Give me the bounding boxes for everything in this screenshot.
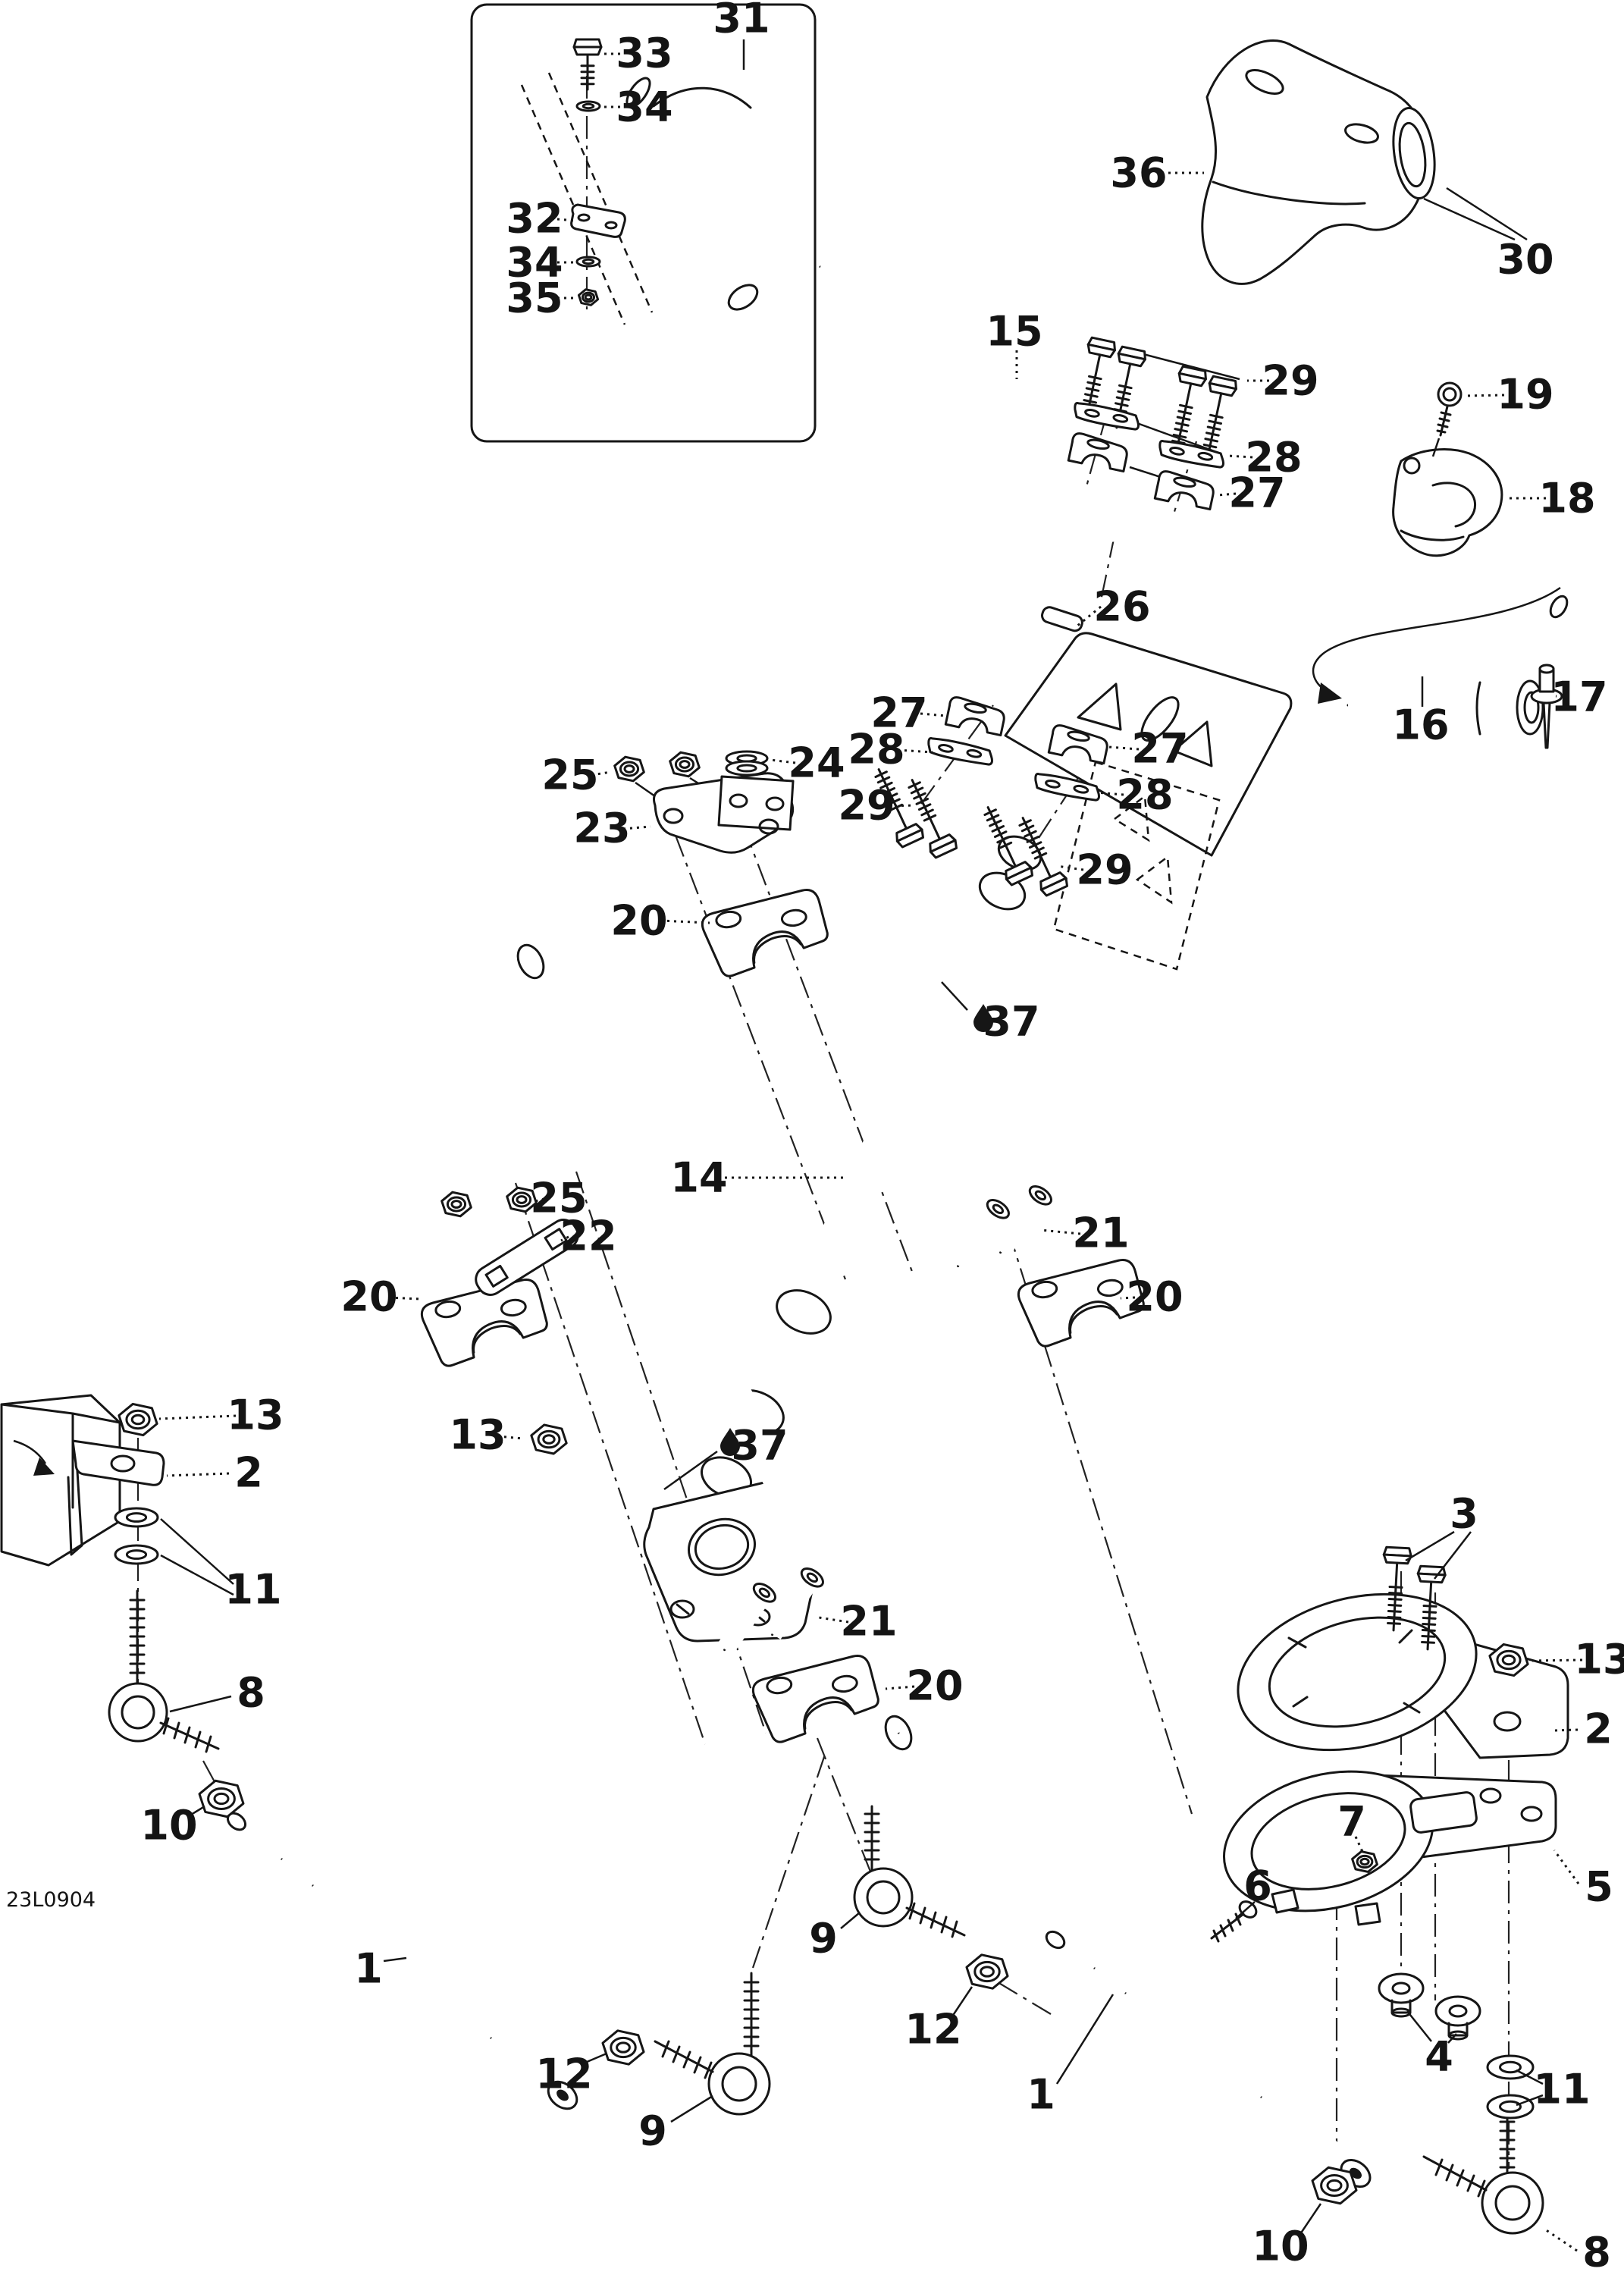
callout-label: 6 xyxy=(1243,1862,1272,1910)
clamp-plate xyxy=(1073,401,1141,431)
callout-label: 7 xyxy=(1337,1798,1366,1846)
washer xyxy=(115,1545,158,1564)
callout-label: 2 xyxy=(1584,1705,1613,1753)
callout-label: 22 xyxy=(560,1213,616,1260)
tie-rod-end-8-left xyxy=(109,1591,218,1752)
callout-label: 24 xyxy=(788,739,845,787)
callout-label: 10 xyxy=(140,1802,197,1850)
callout-label: 23 xyxy=(573,805,630,852)
callout-label: 29 xyxy=(838,782,895,830)
callout-label: 28 xyxy=(1116,771,1173,819)
callout-label: 10 xyxy=(1252,2223,1309,2270)
handlebar-cap-clamp xyxy=(1068,432,1130,472)
callout-label: 21 xyxy=(1072,1210,1129,1257)
hex-nut xyxy=(578,290,597,306)
callout-label: 15 xyxy=(986,308,1042,356)
callout-label: 8 xyxy=(237,1669,265,1717)
screw-19 xyxy=(1433,383,1461,457)
diagram-page: 3133343234353630152919282718171626272829… xyxy=(0,0,1624,2278)
tie-rod-1-right xyxy=(1043,1928,1375,2192)
callout-label: 20 xyxy=(340,1273,397,1321)
hex-bolt xyxy=(1164,366,1207,450)
exploded-parts-diagram: 3133343234353630152919282718171626272829… xyxy=(0,0,1624,2278)
callout-label: 27 xyxy=(1131,725,1188,773)
leader-line xyxy=(1434,1532,1471,1579)
callout-label: 31 xyxy=(713,0,770,42)
callout-label: 14 xyxy=(670,1154,727,1202)
callout-label: 20 xyxy=(1126,1273,1183,1321)
callout-label: 30 xyxy=(1497,236,1553,284)
callout-label: 28 xyxy=(848,726,904,773)
hex-nut xyxy=(615,757,644,781)
hex-nut xyxy=(119,1404,157,1435)
callout-label: 16 xyxy=(1392,701,1449,749)
leader-line xyxy=(841,1912,860,1928)
callout-label: 1 xyxy=(1027,2071,1055,2119)
frame-member-left xyxy=(2,1395,120,1565)
clamp-plate xyxy=(926,736,995,767)
callout-label: 9 xyxy=(809,1915,838,1963)
callout-label: 4 xyxy=(1425,2033,1453,2081)
callout-label: 36 xyxy=(1110,149,1167,197)
leader-line xyxy=(1554,1850,1579,1884)
callout-label: 26 xyxy=(1093,583,1150,631)
callout-label: 8 xyxy=(1582,2229,1611,2276)
callout-label: 29 xyxy=(1262,357,1318,405)
callout-label: 1 xyxy=(354,1945,383,1993)
tie-rod-end-9-up xyxy=(854,1806,964,1937)
callout-label: 12 xyxy=(535,2051,592,2098)
callout-label: 11 xyxy=(224,1566,281,1614)
hex-nut xyxy=(531,1425,566,1454)
tie-rod-1-left xyxy=(224,1810,582,2114)
hex-nut xyxy=(442,1192,472,1216)
washer xyxy=(1488,2095,1533,2118)
callout-label: 33 xyxy=(616,30,672,77)
leader-line xyxy=(1424,199,1515,240)
callout-label: 12 xyxy=(904,2006,961,2054)
leader-line xyxy=(1545,2229,1577,2251)
hex-nut xyxy=(1312,2167,1356,2204)
tie-rod-end-9-low xyxy=(655,1973,770,2114)
callout-label: 29 xyxy=(1076,846,1133,894)
callout-label: 13 xyxy=(227,1392,284,1439)
hex-bolt xyxy=(574,39,601,89)
callout-label: 20 xyxy=(906,1662,963,1710)
callout-label: 27 xyxy=(1228,469,1285,517)
hex-nut xyxy=(603,2031,644,2064)
throttle-housing-18 xyxy=(1394,450,1502,556)
callout-label: 13 xyxy=(449,1411,506,1459)
drawing-code: 23L0904 xyxy=(6,1888,96,1912)
support-clamp xyxy=(699,877,832,979)
leader-line xyxy=(167,1473,229,1476)
hex-bolt xyxy=(900,774,958,858)
leader-line xyxy=(1057,1994,1113,2084)
leader-line xyxy=(170,1696,231,1712)
flange-screw xyxy=(1379,1974,1423,2016)
callout-label: 17 xyxy=(1550,673,1607,721)
hex-nut xyxy=(1353,1852,1378,1872)
callout-label: 25 xyxy=(541,751,598,799)
tie-rod-end-8-right xyxy=(1424,2104,1543,2233)
callout-label: 32 xyxy=(506,195,563,243)
callout-label: 3 xyxy=(1450,1490,1478,1538)
hex-nut xyxy=(199,1781,243,1817)
hex-nut xyxy=(670,752,700,777)
callout-label: 34 xyxy=(616,83,672,131)
callout-label: 2 xyxy=(234,1449,263,1497)
callout-label: 35 xyxy=(506,275,563,322)
hex-nut xyxy=(967,1955,1008,1988)
handlebar-pad-36 xyxy=(1202,41,1440,284)
support-clamp xyxy=(750,1643,883,1745)
leader-line xyxy=(1406,1532,1454,1561)
handlebar-cap-clamp xyxy=(1155,470,1216,510)
callout-label: 19 xyxy=(1497,371,1553,419)
callout-label: 5 xyxy=(1585,1863,1613,1911)
washer xyxy=(115,1508,158,1527)
leader-line xyxy=(671,2096,713,2122)
clamp-32 xyxy=(572,205,625,237)
callout-label: 21 xyxy=(840,1598,897,1646)
callout-label: 9 xyxy=(638,2107,667,2155)
leader-line xyxy=(159,1416,236,1419)
arrow-icon xyxy=(1318,682,1342,704)
callout-label: 20 xyxy=(610,897,667,945)
callout-label: 13 xyxy=(1574,1636,1624,1683)
washer xyxy=(577,102,600,111)
callout-label: 11 xyxy=(1533,2066,1590,2113)
callout-label: 18 xyxy=(1538,475,1595,522)
column-bracket-23 xyxy=(654,773,794,852)
washer xyxy=(577,257,600,266)
